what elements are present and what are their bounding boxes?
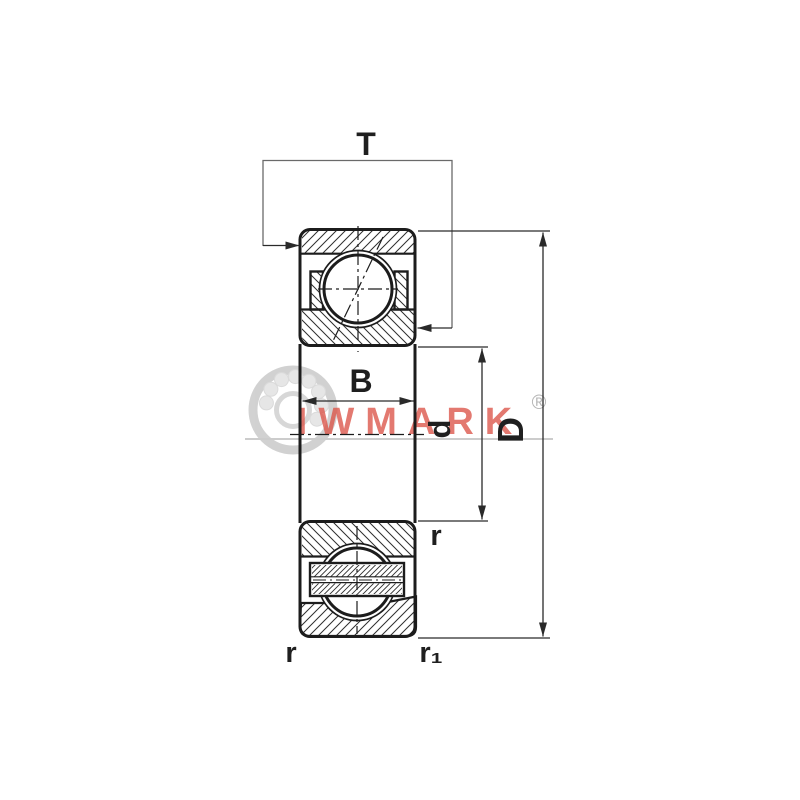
bottom-section [300,522,416,636]
registered-trademark-symbol: ® [532,392,547,414]
label-r1-bottom-right: r₁ [419,637,442,669]
bearing-drawing-page: IWMARK ® [0,0,800,800]
label-D: D [490,417,531,443]
label-r-bottom-left: r [285,637,296,669]
label-T: T [356,126,376,162]
bearing-cross-section-diagram: IWMARK ® [0,0,800,800]
label-d: d [422,420,457,439]
label-B: B [349,363,372,399]
label-r-mid: r [430,520,441,552]
